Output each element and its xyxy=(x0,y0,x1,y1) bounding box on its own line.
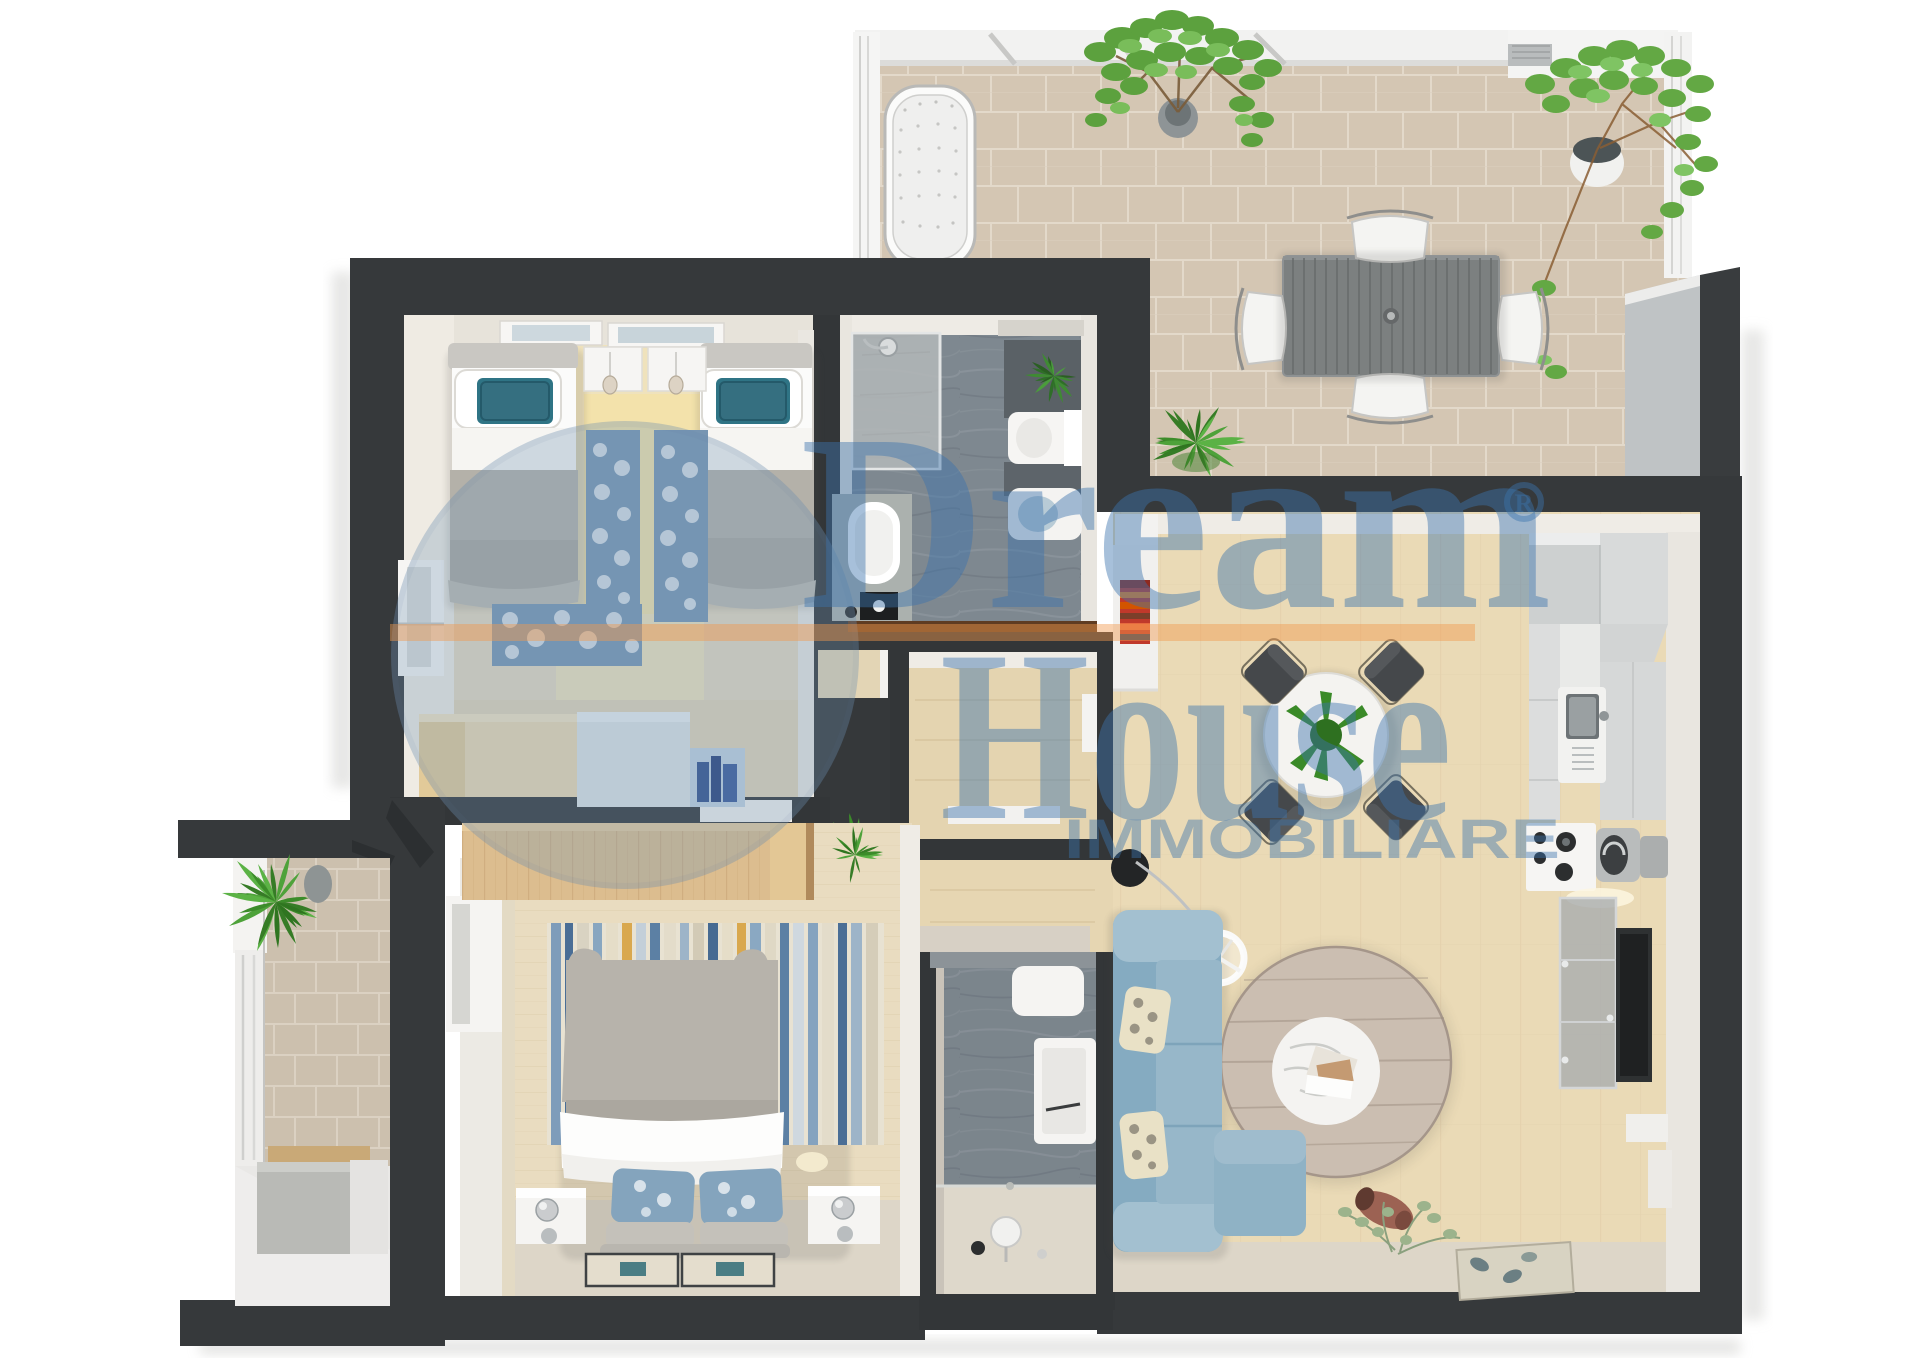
svg-text:IMMOBILIARE: IMMOBILIARE xyxy=(1064,807,1560,870)
svg-text:R: R xyxy=(1515,489,1534,518)
